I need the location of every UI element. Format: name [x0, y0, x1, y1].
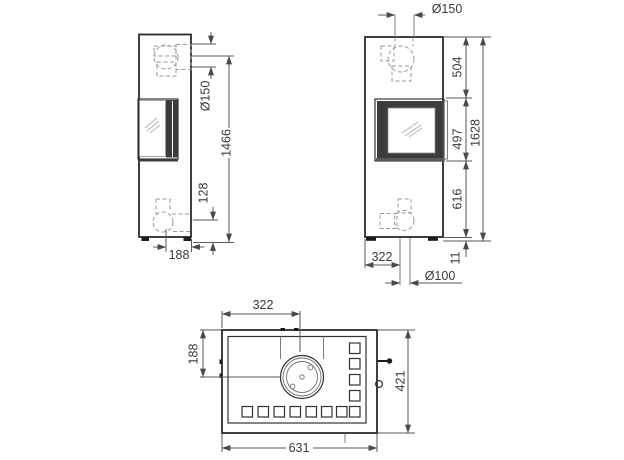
dim-front-total-height: 1628: [468, 119, 482, 147]
technical-drawing-stove: Ø150 1466 128 188: [0, 0, 624, 460]
dim-front-top-to-window: 504: [450, 57, 464, 78]
front-door: [375, 99, 448, 162]
side-door-sill: [139, 159, 178, 162]
side-view: [138, 35, 191, 242]
back-edge-tab-right: [294, 328, 299, 331]
flue-center-mark: [300, 375, 304, 379]
door-handle: [376, 358, 393, 387]
left-edge-tab-top: [220, 360, 223, 365]
top-view: [220, 328, 393, 443]
drawing-canvas: Ø150 1466 128 188: [0, 0, 624, 460]
dim-front-window-to-base: 616: [450, 189, 464, 210]
dim-side-intake-depth: 188: [169, 248, 190, 262]
side-door: [138, 99, 178, 162]
dim-top-width: 631: [289, 441, 310, 455]
front-top-flue-elbow: [381, 38, 414, 82]
top-view-dimensions: 322 188 421 631: [186, 298, 415, 455]
dim-front-intake-diameter: Ø100: [425, 269, 456, 283]
vent-squares-column: [350, 343, 361, 401]
side-top-flue-elbow: [154, 45, 191, 77]
side-bottom-intake-elbow: [153, 199, 191, 232]
door-handle-knob: [387, 358, 392, 363]
back-edge-tab-left: [281, 328, 286, 331]
dim-front-intake-offset: 322: [372, 250, 393, 264]
collar-screw-top: [308, 365, 313, 370]
dim-side-flue-diameter: Ø150: [198, 81, 212, 112]
flue-collar: [281, 356, 324, 399]
dim-front-window-height: 497: [450, 129, 464, 150]
front-view: [365, 15, 448, 285]
side-foot-front: [142, 237, 150, 241]
vent-squares-row: [242, 407, 360, 418]
front-door-glass: [388, 108, 435, 153]
side-door-glass: [140, 101, 166, 157]
dim-top-depth: 421: [393, 371, 407, 392]
dim-top-flue-offset-left: 322: [253, 298, 274, 312]
front-bottom-intake-elbow: [380, 199, 414, 231]
front-foot-left: [366, 237, 376, 241]
dim-top-flue-offset-back: 188: [186, 344, 200, 365]
dim-side-intake-center-height: 128: [196, 183, 210, 204]
side-foot-rear: [184, 237, 192, 241]
side-door-frame: [166, 100, 178, 158]
front-door-sill: [376, 158, 444, 162]
front-foot-right: [428, 237, 438, 241]
top-panel-inner-outline: [228, 337, 366, 424]
dim-side-flue-center-height: 1466: [219, 129, 233, 157]
dim-front-flue-diameter: Ø150: [432, 2, 463, 16]
dim-front-foot-height: 11: [448, 251, 462, 264]
collar-screw-bottom: [290, 384, 295, 389]
